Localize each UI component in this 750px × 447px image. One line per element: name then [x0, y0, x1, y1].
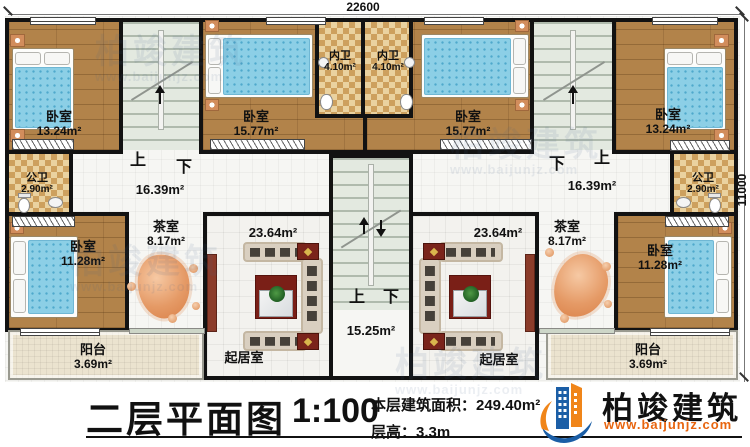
floor-plan-sheet: 22600 11000 — [0, 0, 750, 447]
pillow — [208, 67, 221, 94]
side-table — [297, 243, 319, 260]
stair-down-label: 下 — [383, 283, 399, 307]
stair-up-label: 上 — [349, 283, 365, 307]
room-label-bedroom-tl: 卧室 13.24m² — [14, 110, 104, 138]
room-label-balcony-left: 阳台 3.69m² — [48, 343, 138, 371]
window — [30, 17, 96, 25]
window-strip — [665, 216, 729, 227]
room-label-bath-inner-left: 内卫 4.10m² — [316, 50, 364, 74]
window — [650, 328, 730, 336]
toilet — [400, 94, 413, 110]
toilet — [320, 94, 333, 110]
mattress — [424, 38, 511, 95]
decor-dot — [604, 300, 612, 308]
hall-area-left: 16.39m² — [110, 183, 210, 198]
stair-up-label: 上 — [594, 144, 610, 168]
plant — [463, 286, 479, 302]
pillow — [716, 241, 729, 275]
pillow — [44, 52, 70, 65]
sofa — [439, 242, 503, 262]
sheet-title: 二层平面图 — [86, 389, 286, 443]
nightstand — [205, 20, 219, 32]
decor-dot — [545, 248, 554, 257]
room-label-bedroom-bl: 卧室 11.28m² — [43, 240, 123, 268]
pillow — [208, 38, 221, 65]
decor-dot — [168, 314, 177, 323]
pillow — [13, 241, 26, 275]
room-label-bath-inner-right: 内卫 4.10m² — [364, 50, 412, 74]
side-table — [423, 333, 445, 350]
window-strip — [12, 216, 75, 227]
room-label-tea-left: 茶室 8.17m² — [126, 220, 206, 248]
room-label-bath-public-right: 公卫 2.90m² — [672, 172, 734, 196]
pillow — [15, 52, 41, 65]
company-logo-icon — [536, 380, 602, 444]
window-strip — [12, 139, 74, 150]
room-label-bath-public-left: 公卫 2.90m² — [6, 172, 68, 196]
stair-down-label: 下 — [176, 153, 192, 177]
decor-dot — [602, 262, 611, 271]
width-dimension: 22600 — [318, 0, 408, 14]
stair-hall-area: 15.25m² — [331, 324, 411, 339]
room-label-bedroom-br: 卧室 11.28m² — [620, 244, 700, 272]
side-table — [297, 333, 319, 350]
company-url: www.baijunjz.com — [604, 417, 732, 432]
decor-dot — [560, 314, 569, 323]
decor-dot — [189, 264, 198, 273]
side-table — [423, 243, 445, 260]
tv-cabinet — [207, 254, 217, 332]
room-label-bedroom-tml: 卧室 15.77m² — [200, 110, 312, 138]
nightstand — [714, 34, 729, 47]
window-strip — [440, 139, 532, 150]
sink — [48, 197, 63, 208]
top-dimension-line — [8, 14, 740, 15]
room-label-living-left: 起居室 — [205, 351, 283, 366]
pillow — [716, 279, 729, 313]
plant — [269, 286, 285, 302]
hall-area-right: 16.39m² — [542, 179, 642, 194]
sofa — [301, 258, 323, 334]
window — [266, 17, 326, 25]
stair-direction-arrow — [363, 220, 365, 234]
pillow — [513, 38, 526, 65]
stair-direction-arrow — [572, 88, 574, 104]
sliding-door — [129, 328, 205, 334]
stair-direction-arrow — [159, 88, 161, 104]
stair-direction-arrow — [380, 220, 382, 234]
building-area-note: 本层建筑面积：249.40m² — [371, 394, 540, 415]
sliding-door — [539, 328, 615, 334]
pillow — [13, 279, 26, 313]
room-label-bedroom-tr: 卧室 13.24m² — [612, 108, 724, 136]
window — [424, 17, 484, 25]
sheet-scale: 1:100 — [292, 392, 379, 431]
floor-height-note: 层高：3.3m — [371, 421, 450, 442]
window — [20, 328, 100, 336]
window-strip — [210, 139, 305, 150]
window — [652, 17, 718, 25]
tv-cabinet — [525, 254, 535, 332]
pillow — [667, 52, 693, 65]
pillow — [513, 67, 526, 94]
sink — [676, 197, 691, 208]
stair-up-label: 上 — [130, 146, 146, 170]
nightstand — [10, 34, 25, 47]
decor-dot — [127, 282, 136, 291]
stair-down-label: 下 — [549, 150, 565, 174]
room-label-balcony-right: 阳台 3.69m² — [603, 343, 693, 371]
sofa — [439, 331, 503, 351]
height-dimension: 11000 — [735, 160, 749, 220]
toilet — [709, 198, 721, 213]
room-label-bedroom-tmr: 卧室 15.77m² — [412, 110, 524, 138]
decor-dot — [192, 302, 200, 310]
sofa — [419, 258, 441, 334]
nightstand — [515, 20, 529, 32]
living-area-right: 23.64m² — [453, 226, 543, 241]
room-label-living-right: 起居室 — [460, 353, 538, 368]
mattress — [223, 38, 310, 95]
window-strip — [670, 140, 730, 151]
pillow — [696, 52, 722, 65]
toilet — [18, 198, 30, 213]
living-area-left: 23.64m² — [228, 226, 318, 241]
